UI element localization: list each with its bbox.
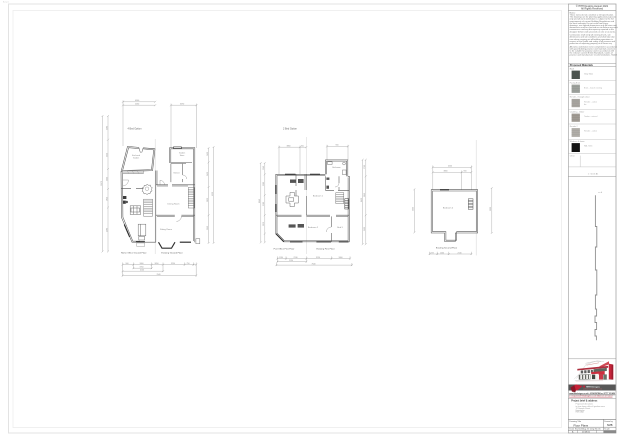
- svg-text:Floor Plans: Floor Plans: [574, 423, 589, 427]
- svg-text:4560: 4560: [135, 100, 139, 102]
- svg-text:SMB: SMB: [607, 423, 613, 427]
- svg-text:1760: 1760: [364, 165, 366, 169]
- svg-text:1430: 1430: [207, 152, 209, 156]
- svg-text:750: 750: [301, 146, 304, 148]
- svg-text:9520: 9520: [212, 192, 214, 196]
- svg-text:13970: 13970: [101, 181, 103, 186]
- svg-text:1850: 1850: [106, 197, 108, 201]
- svg-text:4500: 4500: [448, 166, 452, 168]
- svg-text:2130: 2130: [289, 260, 293, 262]
- svg-text:Grey Slate: Grey Slate: [584, 73, 593, 76]
- svg-text:Store: Store: [180, 154, 185, 157]
- svg-text:Windows & doors: Windows & doors: [570, 140, 585, 143]
- svg-text:All Rights Reserved: All Rights Reserved: [581, 8, 604, 11]
- svg-text:7640: 7640: [157, 274, 161, 276]
- svg-text:Timber - natural: Timber - natural: [584, 115, 598, 118]
- svg-text:3590: 3590: [180, 103, 184, 105]
- svg-text:2260: 2260: [135, 103, 139, 105]
- svg-text:Roof: Roof: [570, 69, 574, 71]
- svg-text:3800: 3800: [444, 171, 448, 173]
- svg-text:2130: 2130: [458, 252, 462, 254]
- svg-text:8640: 8640: [259, 199, 261, 203]
- svg-text:2280: 2280: [263, 182, 265, 186]
- svg-text:Bedroom 2: Bedroom 2: [308, 226, 319, 229]
- svg-text:Part Office First Floor: Part Office First Floor: [274, 248, 295, 251]
- svg-text:Garden: Garden: [133, 157, 139, 160]
- svg-text:Bedroom 4: Bedroom 4: [443, 206, 454, 209]
- svg-text:5000: 5000: [413, 207, 415, 211]
- svg-text:3150: 3150: [316, 257, 320, 259]
- svg-text:3050: 3050: [155, 263, 159, 265]
- svg-text:Sitting Room: Sitting Room: [160, 228, 172, 231]
- svg-text:3890: 3890: [364, 193, 366, 197]
- svg-text:2900: 2900: [364, 227, 366, 231]
- svg-text:tbc: tbc: [584, 103, 587, 106]
- svg-text:Dining Room: Dining Room: [167, 203, 179, 205]
- svg-text:1950: 1950: [140, 267, 144, 269]
- svg-text:protection of adjoining proper: protection of adjoining property at all …: [570, 42, 613, 45]
- svg-text:873: 873: [431, 252, 434, 254]
- svg-text:Existing Ground Floor: Existing Ground Floor: [161, 252, 182, 255]
- svg-text:3290: 3290: [171, 263, 175, 265]
- svg-text:4380: 4380: [106, 228, 108, 232]
- svg-text:Home Office Ground Floor: Home Office Ground Floor: [121, 252, 147, 255]
- svg-text:7640: 7640: [312, 264, 316, 266]
- svg-text:750: 750: [187, 263, 190, 265]
- svg-text:Render 2: Render 2: [570, 125, 578, 128]
- svg-text:HHH Designs: HHH Designs: [586, 387, 601, 389]
- svg-text:1240: 1240: [263, 166, 265, 170]
- svg-text:3860: 3860: [287, 146, 291, 148]
- svg-text:1800: 1800: [140, 263, 144, 265]
- svg-text:Render - colour: Render - colour: [584, 130, 597, 133]
- svg-text:Facing Brick: Facing Brick: [570, 81, 580, 84]
- svg-text:2380: 2380: [106, 126, 108, 130]
- svg-text:900: 900: [464, 171, 467, 173]
- svg-text:2130: 2130: [294, 257, 298, 259]
- svg-text:practice and manufacturer reco: practice and manufacturer recommendation…: [570, 54, 617, 57]
- svg-text:Brick - match existing: Brick - match existing: [584, 86, 602, 89]
- svg-text:1130: 1130: [279, 257, 283, 259]
- svg-text:Kitchen: Kitchen: [173, 171, 179, 174]
- svg-text:2450: 2450: [207, 172, 209, 176]
- svg-text:Bathroom: Bathroom: [332, 166, 341, 169]
- svg-text:Existing First Floor: Existing First Floor: [316, 248, 334, 251]
- svg-text:21/08/21: 21/08/21: [582, 432, 591, 434]
- svg-text:Render - through colour: Render - through colour: [570, 96, 590, 99]
- svg-text:2010: 2010: [263, 222, 265, 226]
- svg-text:RAL 7016: RAL 7016: [584, 144, 592, 147]
- svg-text:4100: 4100: [140, 270, 144, 272]
- svg-text:Project brief & address: Project brief & address: [571, 399, 598, 402]
- svg-text:2180: 2180: [263, 202, 265, 206]
- svg-text:5000: 5000: [490, 207, 492, 211]
- svg-text:Cladding - timber: Cladding - timber: [570, 111, 585, 114]
- svg-text:900: 900: [336, 145, 339, 147]
- svg-text:Existing Second Floor: Existing Second Floor: [436, 246, 458, 249]
- svg-text:Drawn by: Drawn by: [604, 421, 612, 423]
- svg-text:Other: Other: [570, 154, 575, 157]
- svg-text:8450: 8450: [361, 198, 363, 202]
- svg-text:designer before work proceeds: designer before work proceeds on site or…: [570, 30, 616, 33]
- svg-text:Bedroom 1: Bedroom 1: [313, 195, 324, 198]
- svg-text:2920: 2920: [106, 153, 108, 157]
- svg-text:900: 900: [126, 263, 129, 265]
- svg-text:2 Bed Option: 2 Bed Option: [283, 128, 298, 131]
- svg-text:2820: 2820: [207, 198, 209, 202]
- svg-text:1800: 1800: [339, 257, 343, 259]
- svg-text:HM1 2AB: HM1 2AB: [576, 411, 585, 414]
- svg-text:2000: 2000: [106, 177, 108, 181]
- svg-text:2690: 2690: [207, 226, 209, 230]
- svg-text:Bed 3: Bed 3: [337, 227, 343, 229]
- svg-text:1 : 50 @ A1: 1 : 50 @ A1: [588, 172, 599, 175]
- svg-text:A1 p1: A1 p1: [3, 1, 9, 4]
- svg-text:4 Bed Option: 4 Bed Option: [128, 128, 143, 131]
- svg-text:1560: 1560: [440, 252, 444, 254]
